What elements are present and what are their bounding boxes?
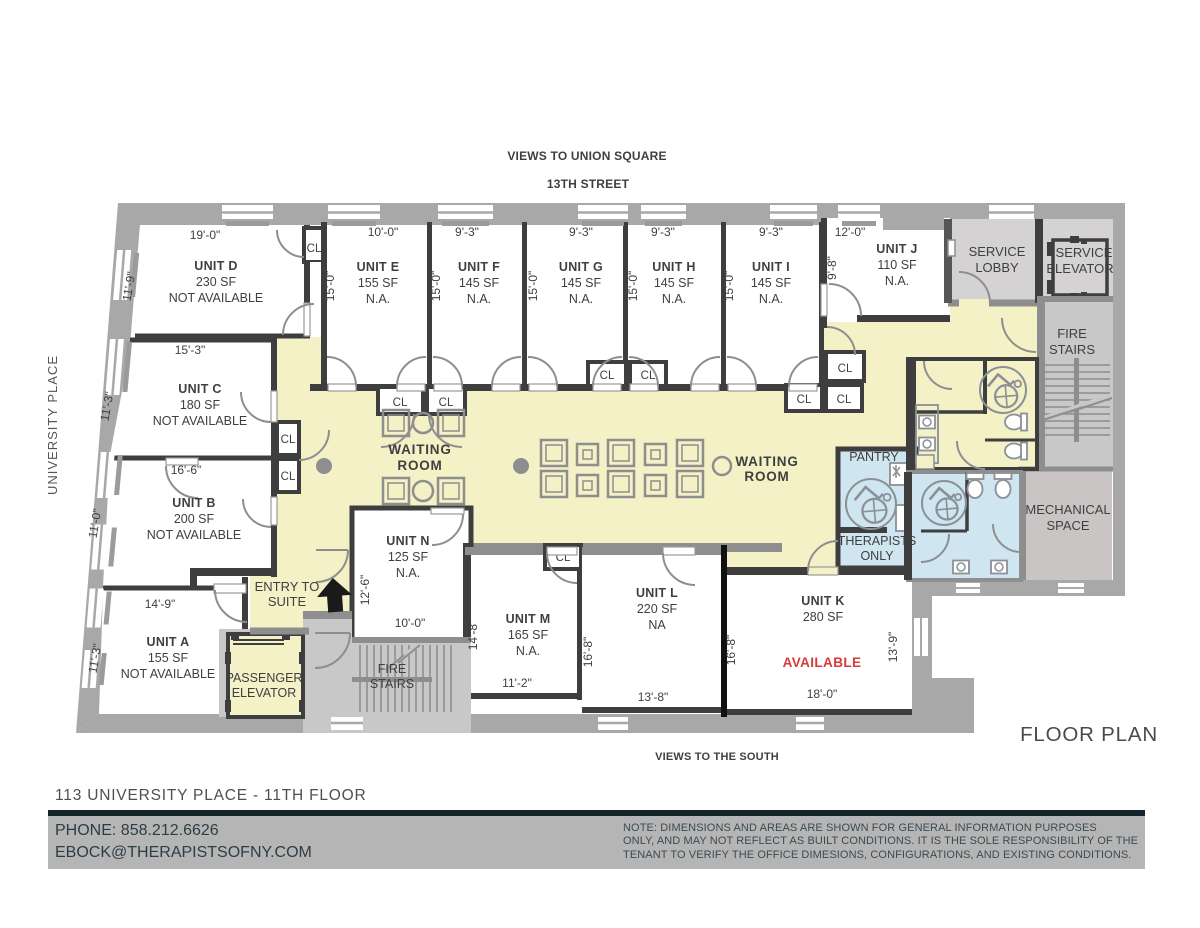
svg-text:FLOOR PLAN: FLOOR PLAN: [1020, 723, 1158, 746]
svg-text:15'-0": 15'-0": [626, 271, 640, 302]
svg-text:ROOM: ROOM: [397, 458, 442, 473]
svg-text:200 SF: 200 SF: [174, 512, 215, 526]
svg-text:UNIT A: UNIT A: [147, 635, 190, 649]
svg-text:CL: CL: [600, 370, 615, 382]
svg-text:14'-8": 14'-8": [466, 620, 480, 651]
svg-text:UNIT K: UNIT K: [801, 594, 844, 608]
svg-text:SPACE: SPACE: [1046, 518, 1089, 533]
svg-text:CL: CL: [797, 394, 812, 406]
svg-text:N.A.: N.A.: [366, 292, 390, 306]
svg-text:15'-0": 15'-0": [526, 271, 540, 302]
svg-text:16'-6": 16'-6": [171, 463, 202, 477]
svg-text:145 SF: 145 SF: [654, 276, 695, 290]
svg-text:16'-8": 16'-8": [581, 637, 595, 668]
svg-text:UNIT C: UNIT C: [178, 382, 221, 396]
svg-text:N.A.: N.A.: [516, 644, 540, 658]
svg-text:UNIT I: UNIT I: [752, 260, 790, 274]
svg-text:STAIRS: STAIRS: [1049, 342, 1095, 357]
svg-text:SUITE: SUITE: [268, 594, 307, 609]
svg-text:9'-3": 9'-3": [569, 225, 593, 239]
svg-text:180 SF: 180 SF: [180, 398, 221, 412]
svg-text:15'-0": 15'-0": [323, 271, 337, 302]
svg-text:UNIT H: UNIT H: [652, 260, 695, 274]
svg-text:110 SF: 110 SF: [877, 258, 917, 272]
svg-text:VIEWS TO THE SOUTH: VIEWS TO THE SOUTH: [655, 751, 779, 763]
svg-text:145 SF: 145 SF: [561, 276, 602, 290]
svg-text:16'-8": 16'-8": [724, 635, 738, 666]
svg-text:- SERVICE: - SERVICE: [1048, 245, 1113, 260]
svg-text:UNIT F: UNIT F: [458, 260, 500, 274]
svg-text:CL: CL: [439, 397, 454, 409]
svg-text:UNIT J: UNIT J: [876, 242, 917, 256]
svg-text:ROOM: ROOM: [744, 469, 789, 484]
svg-text:N.A.: N.A.: [885, 274, 909, 288]
svg-text:NOT AVAILABLE: NOT AVAILABLE: [169, 291, 264, 305]
svg-text:UNIT B: UNIT B: [172, 496, 215, 510]
svg-text:N.A.: N.A.: [396, 566, 420, 580]
svg-text:9'-8": 9'-8": [825, 256, 839, 280]
svg-text:9'-3": 9'-3": [651, 225, 675, 239]
svg-text:13'-9": 13'-9": [886, 632, 900, 663]
svg-text:UNIT N: UNIT N: [386, 534, 429, 548]
svg-text:ONLY: ONLY: [860, 549, 894, 563]
svg-text:NOT AVAILABLE: NOT AVAILABLE: [153, 414, 248, 428]
svg-text:NOT AVAILABLE: NOT AVAILABLE: [121, 667, 216, 681]
svg-text:PASSENGER: PASSENGER: [226, 671, 303, 685]
svg-text:N.A.: N.A.: [569, 292, 593, 306]
svg-text:12'-6": 12'-6": [358, 575, 372, 606]
svg-text:CL: CL: [837, 394, 852, 406]
svg-text:10'-0": 10'-0": [395, 616, 426, 630]
svg-text:ELEVATOR: ELEVATOR: [232, 686, 297, 700]
svg-text:THERAPISTS: THERAPISTS: [838, 534, 917, 548]
svg-text:19'-0": 19'-0": [190, 228, 221, 242]
svg-text:13TH STREET: 13TH STREET: [547, 177, 630, 191]
svg-text:155 SF: 155 SF: [358, 276, 399, 290]
svg-text:UNIT D: UNIT D: [194, 259, 237, 273]
svg-text:145 SF: 145 SF: [459, 276, 500, 290]
svg-text:UNIT L: UNIT L: [636, 586, 678, 600]
svg-text:13'-8": 13'-8": [638, 690, 669, 704]
svg-text:CL: CL: [307, 243, 322, 255]
svg-text:NA: NA: [648, 618, 666, 632]
svg-text:15'-3": 15'-3": [175, 343, 206, 357]
svg-text:WAITING: WAITING: [388, 442, 451, 457]
svg-text:UNIT M: UNIT M: [506, 612, 551, 626]
svg-text:UNIVERSITY PLACE: UNIVERSITY PLACE: [45, 355, 60, 495]
svg-text:230 SF: 230 SF: [196, 275, 237, 289]
svg-text:165 SF: 165 SF: [508, 628, 549, 642]
svg-text:FIRE: FIRE: [378, 662, 406, 676]
svg-text:220 SF: 220 SF: [637, 602, 678, 616]
svg-text:UNIT G: UNIT G: [559, 260, 603, 274]
svg-text:WAITING: WAITING: [735, 454, 798, 469]
svg-text:12'-0": 12'-0": [835, 225, 866, 239]
svg-text:CL: CL: [281, 434, 296, 446]
svg-text:STAIRS: STAIRS: [370, 677, 414, 691]
svg-text:N.A.: N.A.: [662, 292, 686, 306]
svg-text:9'-3": 9'-3": [455, 225, 479, 239]
svg-text:PANTRY: PANTRY: [849, 450, 899, 464]
svg-text:155 SF: 155 SF: [148, 651, 189, 665]
svg-text:N.A.: N.A.: [759, 292, 783, 306]
svg-text:ELEVATOR: ELEVATOR: [1046, 261, 1113, 276]
svg-text:SERVICE: SERVICE: [969, 244, 1026, 259]
svg-text:280 SF: 280 SF: [803, 610, 844, 624]
svg-text:CL: CL: [281, 471, 296, 483]
svg-text:11'-2": 11'-2": [502, 676, 532, 690]
svg-text:UNIT E: UNIT E: [357, 260, 400, 274]
svg-text:VIEWS TO UNION SQUARE: VIEWS TO UNION SQUARE: [507, 149, 666, 163]
svg-text:FIRE: FIRE: [1057, 326, 1087, 341]
svg-text:LOBBY: LOBBY: [975, 260, 1019, 275]
svg-text:125 SF: 125 SF: [388, 550, 429, 564]
svg-text:NOT AVAILABLE: NOT AVAILABLE: [147, 528, 242, 542]
svg-text:CL: CL: [393, 397, 408, 409]
svg-text:145 SF: 145 SF: [751, 276, 792, 290]
svg-text:18'-0": 18'-0": [807, 687, 838, 701]
svg-text:MECHANICAL: MECHANICAL: [1025, 502, 1110, 517]
svg-text:10'-0": 10'-0": [368, 225, 399, 239]
svg-text:9'-3": 9'-3": [759, 225, 783, 239]
svg-text:CL: CL: [838, 363, 853, 375]
svg-text:14'-9": 14'-9": [145, 597, 176, 611]
svg-text:N.A.: N.A.: [467, 292, 491, 306]
svg-text:ENTRY TO: ENTRY TO: [255, 579, 320, 594]
svg-text:15'-0": 15'-0": [429, 271, 443, 302]
svg-text:15'-0": 15'-0": [722, 271, 736, 302]
svg-text:AVAILABLE: AVAILABLE: [783, 655, 862, 670]
